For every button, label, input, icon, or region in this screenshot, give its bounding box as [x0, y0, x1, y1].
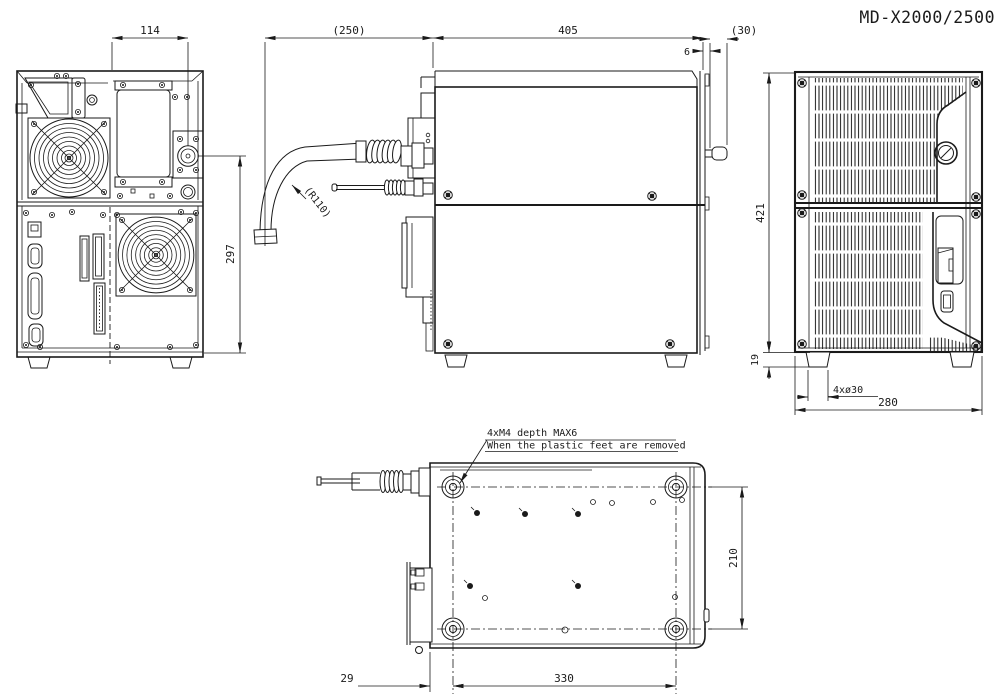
front-view: 421 19 4xø30 280 [750, 72, 982, 415]
rear-vent-hole [87, 95, 97, 105]
side-top-cap [435, 71, 697, 87]
rear-foot-left [28, 357, 50, 368]
dim-side-knob: (30) [698, 24, 757, 39]
bottom-cable [317, 468, 430, 496]
front-foot-right [950, 352, 974, 367]
side-view: (R110) (250) 405 6 (30) [254, 24, 757, 367]
front-pendant-connector [941, 291, 953, 312]
dim-label-330: 330 [554, 672, 574, 685]
cable-strain-relief [365, 140, 403, 164]
side-front-bezel [700, 71, 705, 355]
dim-label-4xd30: 4xø30 [833, 385, 863, 396]
drawing-sheet: MD-X2000/2500 [0, 0, 1000, 700]
rear-access-panel [115, 81, 172, 198]
signal-cable [332, 179, 433, 196]
dim-rear-height: 297 [198, 156, 246, 353]
side-knob [705, 147, 727, 160]
dim-label-29: 29 [340, 672, 353, 685]
technical-drawing: MD-X2000/2500 [0, 0, 1000, 700]
callout-bend-radius: (R110) [292, 185, 333, 220]
rear-fan-lower [116, 214, 196, 296]
side-rear-connector-box [406, 217, 433, 297]
dim-side-depth: 405 [433, 24, 703, 70]
dim-front-feet-diameter: 4xø30 [797, 370, 878, 401]
dim-label-r110: (R110) [302, 185, 333, 220]
bottom-view: 4xM4 depth MAX6 When the plastic feet ar… [317, 428, 748, 694]
dim-label-250: (250) [332, 24, 365, 37]
dim-label-19: 19 [750, 354, 761, 366]
front-foot-left [806, 352, 830, 367]
rear-foot-right [170, 357, 192, 368]
dim-label-114: 114 [140, 24, 160, 37]
dim-bottom-feet-depth: 210 [708, 487, 748, 629]
dim-label-421: 421 [754, 203, 767, 223]
dsub9-lower [29, 324, 43, 346]
rear-view: 114 297 [16, 24, 246, 368]
front-access-door [936, 216, 963, 284]
drawing-title: MD-X2000/2500 [859, 8, 995, 27]
note-mounting-holes: 4xM4 depth MAX6 When the plastic feet ar… [460, 428, 686, 483]
front-chassis-divider [795, 203, 982, 208]
card-slot-b [93, 234, 104, 279]
note-line-1: 4xM4 depth MAX6 [487, 428, 577, 439]
dim-label-210: 210 [727, 548, 740, 568]
dim-label-6: 6 [684, 47, 690, 58]
rear-io-connectors [28, 222, 105, 346]
bottom-foot-1 [442, 476, 464, 498]
bottom-knob-bump [704, 609, 709, 622]
side-foot-right [665, 355, 687, 367]
front-knob [935, 142, 957, 164]
note-line-2: When the plastic feet are removed [487, 441, 686, 452]
dsub25 [28, 273, 42, 319]
rear-psu-plate [25, 73, 85, 118]
rear-chassis-divider [17, 202, 203, 206]
dim-label-297: 297 [224, 244, 237, 264]
side-foot-left [445, 355, 467, 367]
rear-fan-upper [28, 118, 110, 198]
dim-front-foot-height: 19 [750, 341, 812, 379]
dim-label-30: (30) [731, 24, 758, 37]
dim-bottom-feet-width: 330 29 [340, 652, 676, 692]
bottom-body [430, 463, 705, 648]
bottom-holes [464, 498, 685, 634]
card-slot-a [80, 236, 89, 281]
card-slot-c [94, 283, 105, 334]
dim-label-405: 405 [558, 24, 578, 37]
front-vents-lower [813, 212, 923, 349]
dim-label-280: 280 [878, 396, 898, 409]
ethernet-port [28, 222, 41, 237]
bottom-connector-block [407, 562, 432, 654]
side-body [435, 87, 697, 353]
